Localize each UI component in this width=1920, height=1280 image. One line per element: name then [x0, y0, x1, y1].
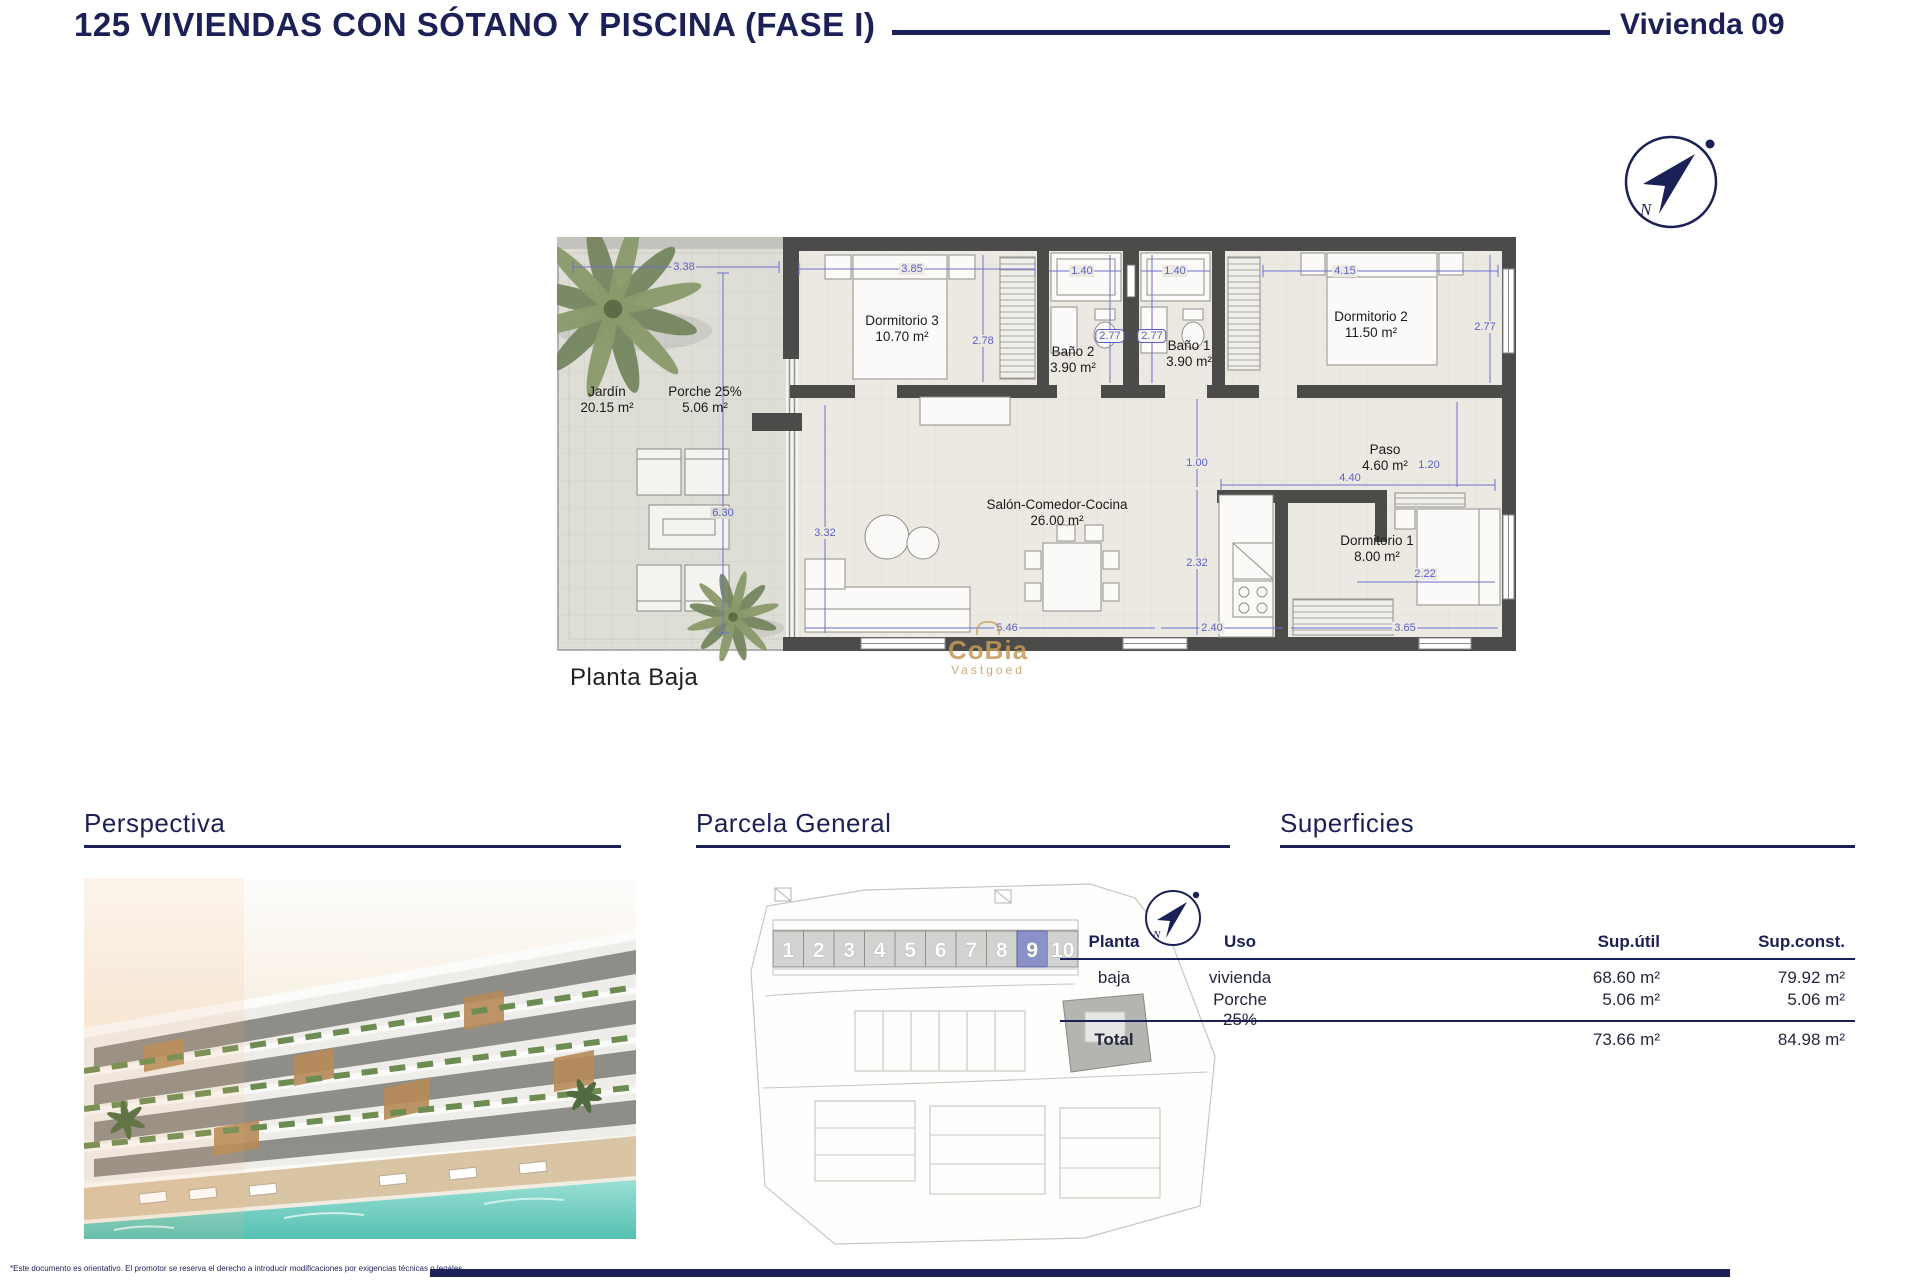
dim-dorm1-width: 3.65 — [1392, 622, 1417, 634]
watermark-icon — [976, 621, 1000, 635]
unit-number-4: 4 — [874, 939, 886, 962]
cell-sup-util: 5.06 m² — [1530, 990, 1660, 1010]
unit-number-6: 6 — [935, 939, 947, 962]
dim-jardin-width: 3.38 — [671, 261, 696, 273]
dim-dorm2-width: 4.15 — [1332, 265, 1357, 277]
room-label-bano1: Baño 13.90 m² — [1166, 338, 1212, 370]
unit-number-2: 2 — [813, 939, 825, 962]
perspectiva-title: Perspectiva — [84, 808, 225, 839]
dim-bano1-depth: 2.77 — [1137, 329, 1166, 343]
unit-number-1: 1 — [782, 939, 794, 962]
room-label-dorm2: Dormitorio 211.50 m² — [1334, 309, 1408, 341]
page-title: 125 VIVIENDAS CON SÓTANO Y PISCINA (FASE… — [74, 6, 875, 44]
dim-bano1-width: 1.40 — [1162, 265, 1187, 277]
room-label-bano2: Baño 23.90 m² — [1050, 344, 1096, 376]
perspective-photo — [84, 878, 636, 1239]
dim-bano2-width: 1.40 — [1069, 265, 1094, 277]
unit-number-7: 7 — [965, 939, 977, 962]
dim-paso-opening: 1.00 — [1184, 457, 1209, 469]
site-plan: 1 2 3 4 5 6 7 8 9 10 — [745, 876, 1243, 1254]
unit-number-5: 5 — [904, 939, 916, 962]
cell-planta: baja — [1074, 968, 1154, 988]
unit-number-9: 9 — [1026, 939, 1038, 962]
room-label-porche: Porche 25%5.06 m² — [668, 384, 742, 416]
total-sup-util: 73.66 m² — [1530, 1030, 1660, 1050]
cell-sup-util: 68.60 m² — [1530, 968, 1660, 988]
dim-bano2-depth: 2.77 — [1095, 329, 1124, 343]
disclaimer-text: *Este documento es orientativo. El promo… — [10, 1264, 462, 1273]
porche-glass-door — [786, 359, 798, 637]
room-label-jardin: Jardín20.15 m² — [580, 384, 633, 416]
room-label-dorm3: Dormitorio 310.70 m² — [865, 313, 939, 345]
unit-number-8: 8 — [996, 939, 1008, 962]
dim-cocina-depth: 2.32 — [1184, 557, 1209, 569]
room-label-salon: Salón-Comedor-Cocina26.00 m² — [986, 497, 1127, 529]
dim-dorm2-depth: 2.77 — [1472, 321, 1497, 333]
dim-salon-depth: 3.32 — [812, 527, 837, 539]
parcela-title: Parcela General — [696, 808, 891, 839]
cell-sup-const: 79.92 m² — [1715, 968, 1845, 988]
dim-jardin-depth: 6.30 — [710, 507, 735, 519]
table-rule-bottom — [1060, 1020, 1855, 1022]
brochure-page: 125 VIVIENDAS CON SÓTANO Y PISCINA (FASE… — [0, 0, 1920, 1280]
cell-uso: Porche 25% — [1195, 990, 1285, 1030]
col-header-planta: Planta — [1074, 932, 1154, 952]
unit-label: Vivienda 09 — [1620, 8, 1785, 42]
room-label-paso: Paso4.60 m² — [1362, 442, 1408, 474]
header-divider-line — [892, 30, 1610, 35]
site-compass-icon: N — [1146, 891, 1200, 945]
total-sup-const: 84.98 m² — [1715, 1030, 1845, 1050]
cell-uso: vivienda — [1195, 968, 1285, 988]
table-rule-top — [1060, 958, 1855, 960]
superficies-underline — [1280, 845, 1855, 848]
perspectiva-underline — [84, 845, 621, 848]
compass-icon: N — [1613, 122, 1731, 242]
dim-paso-width: 4.40 — [1337, 472, 1362, 484]
dim-dorm3-depth: 2.78 — [970, 335, 995, 347]
dim-cocina-width: 2.40 — [1199, 622, 1224, 634]
floor-name-label: Planta Baja — [570, 664, 698, 692]
superficies-title: Superficies — [1280, 808, 1414, 839]
parcela-underline — [696, 845, 1230, 848]
dim-paso-depth: 1.20 — [1416, 459, 1441, 471]
unit-number-3: 3 — [843, 939, 855, 962]
col-header-sup-util: Sup.útil — [1530, 932, 1660, 952]
col-header-sup-const: Sup.const. — [1715, 932, 1845, 952]
dim-dorm1-inner: 2.22 — [1412, 568, 1437, 580]
total-label: Total — [1074, 1030, 1154, 1050]
cell-sup-const: 5.06 m² — [1715, 990, 1845, 1010]
footer-bar — [430, 1269, 1730, 1277]
dim-dorm3-width: 3.85 — [899, 263, 924, 275]
watermark-logo: CoBia Vastgoed — [948, 621, 1028, 679]
compass-north-label: N — [1639, 200, 1653, 219]
room-label-dorm1: Dormitorio 18.00 m² — [1340, 533, 1414, 565]
floor-plan: Jardín20.15 m² Porche 25%5.06 m² Dormito… — [557, 237, 1517, 661]
col-header-uso: Uso — [1195, 932, 1285, 952]
compass-dot — [1706, 140, 1715, 149]
